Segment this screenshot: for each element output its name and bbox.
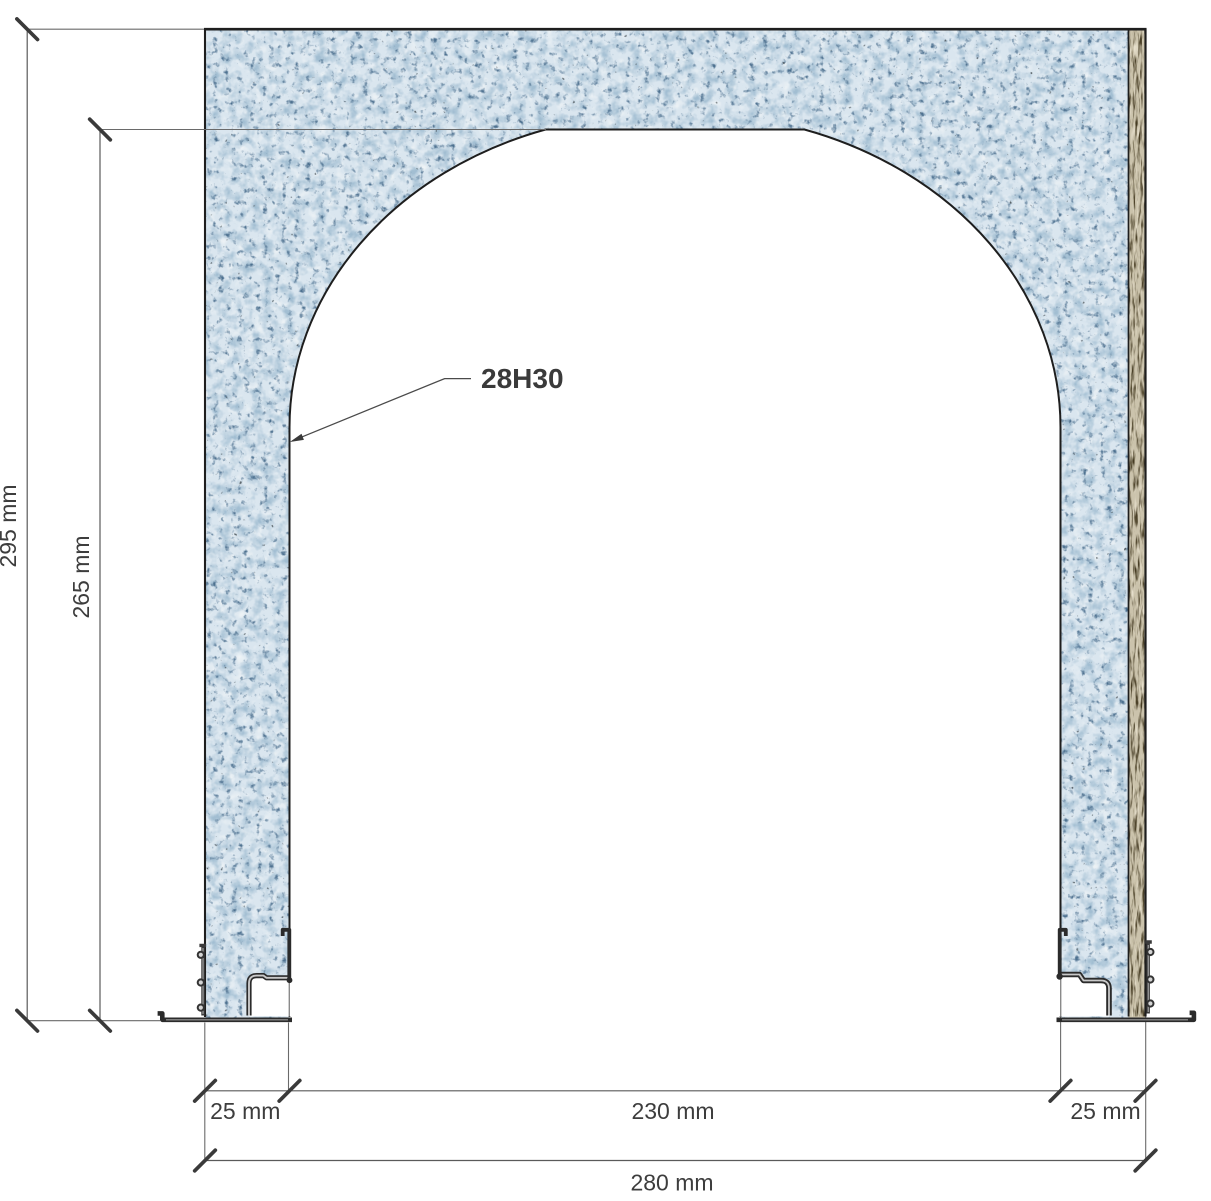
svg-text:265 mm: 265 mm: [68, 535, 94, 618]
svg-text:280 mm: 280 mm: [630, 1170, 713, 1196]
svg-text:230 mm: 230 mm: [631, 1098, 714, 1124]
svg-text:295 mm: 295 mm: [0, 484, 21, 567]
svg-text:25 mm: 25 mm: [1070, 1098, 1140, 1124]
svg-text:25 mm: 25 mm: [210, 1098, 280, 1124]
svg-text:28H30: 28H30: [481, 363, 564, 394]
